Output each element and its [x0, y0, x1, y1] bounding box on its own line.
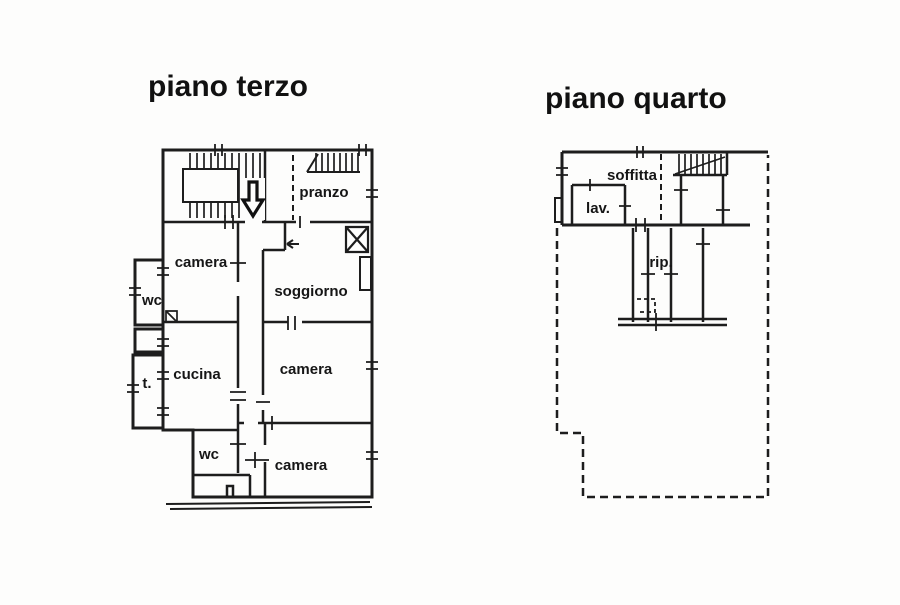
corner-flue-icon: [166, 311, 177, 322]
staircase-landing: [183, 169, 238, 202]
room-label-pranzo: pranzo: [299, 184, 348, 201]
floor-plans-canvas: piano terzo pranzo camera wc: [0, 0, 900, 605]
attic-stair-treads: [679, 154, 721, 175]
room-label-soffitta: soffitta: [607, 167, 658, 184]
room-label-wc-2: wc: [198, 446, 219, 463]
shaft-annex-walls: [135, 329, 163, 352]
room-label-camera-3: camera: [275, 457, 328, 474]
room-label-t: t.: [142, 375, 151, 392]
pranzo-stair-treads: [316, 153, 358, 172]
wall-niche: [360, 257, 371, 290]
balcony-edge-lines: [166, 502, 372, 509]
attic-stair-diagonal: [675, 157, 725, 174]
room-label-camera-1: camera: [175, 254, 228, 271]
room-label-wc-1: wc: [141, 292, 162, 309]
scanned-floorplan-page: piano terzo pranzo camera wc: [0, 0, 900, 605]
room-label-camera-2: camera: [280, 361, 333, 378]
rip-walls: [618, 228, 727, 325]
plan-title-piano-quarto: piano quarto: [545, 82, 727, 115]
room-label-rip: rip.: [649, 254, 672, 271]
floor-plan-piano-terzo: piano terzo pranzo camera wc: [127, 70, 378, 509]
flue-shaft-icon: [346, 227, 368, 252]
room-label-soggiorno: soggiorno: [274, 283, 347, 300]
room-label-cucina: cucina: [173, 366, 221, 383]
room-label-lav: lav.: [586, 200, 610, 217]
plan-title-piano-terzo: piano terzo: [148, 70, 308, 103]
rip-dashed-fixture: [637, 299, 655, 312]
entry-arrow-icon: [287, 240, 299, 248]
floor-plan-piano-quarto: piano quarto soffitta lav. rip.: [545, 82, 768, 497]
